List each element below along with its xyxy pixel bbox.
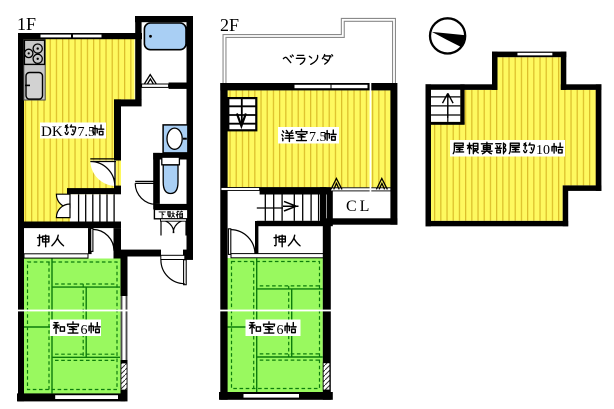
svg-text:10: 10	[536, 143, 550, 158]
svg-text:2F: 2F	[220, 15, 239, 35]
svg-text:6: 6	[81, 323, 88, 338]
svg-text:CL: CL	[346, 198, 372, 215]
svg-text:7.5: 7.5	[309, 130, 327, 145]
svg-text:1F: 1F	[17, 14, 36, 34]
svg-text:DK: DK	[41, 124, 63, 140]
svg-text:6: 6	[277, 323, 284, 338]
